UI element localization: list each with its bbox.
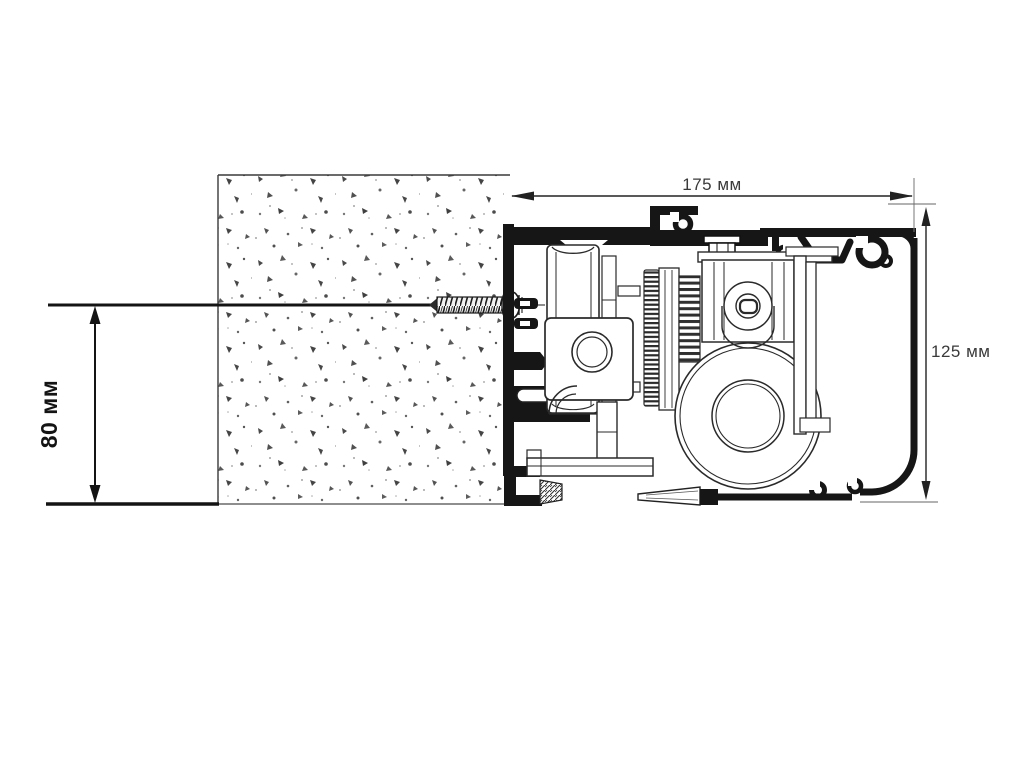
arrow-down-icon: [922, 481, 931, 500]
arrow-right-icon: [890, 192, 913, 201]
technical-diagram-svg: 80 мм: [0, 0, 1024, 768]
brush-seal-bottom: [638, 487, 700, 505]
arrow-down-icon: [90, 485, 101, 503]
arrow-up-icon: [90, 306, 101, 324]
dim-label-125mm: 125 мм: [931, 342, 990, 361]
dim-label-175mm: 175 мм: [682, 175, 741, 194]
dim-label-80mm: 80 мм: [36, 380, 62, 449]
dimension-125mm: 125 мм: [860, 207, 990, 502]
dimension-175mm: 175 мм: [511, 175, 936, 232]
arrow-up-icon: [922, 207, 931, 226]
bracket-plate: [545, 318, 633, 400]
brush-seal-left: [540, 480, 562, 504]
motor-bracket: [702, 260, 794, 348]
side-plates: [794, 256, 830, 434]
diagram-page: 80 мм: [0, 0, 1024, 768]
motor-hub: [724, 282, 772, 330]
arrow-left-icon: [511, 192, 534, 201]
wall-section: [218, 175, 510, 505]
drive-mechanism: [527, 245, 838, 489]
